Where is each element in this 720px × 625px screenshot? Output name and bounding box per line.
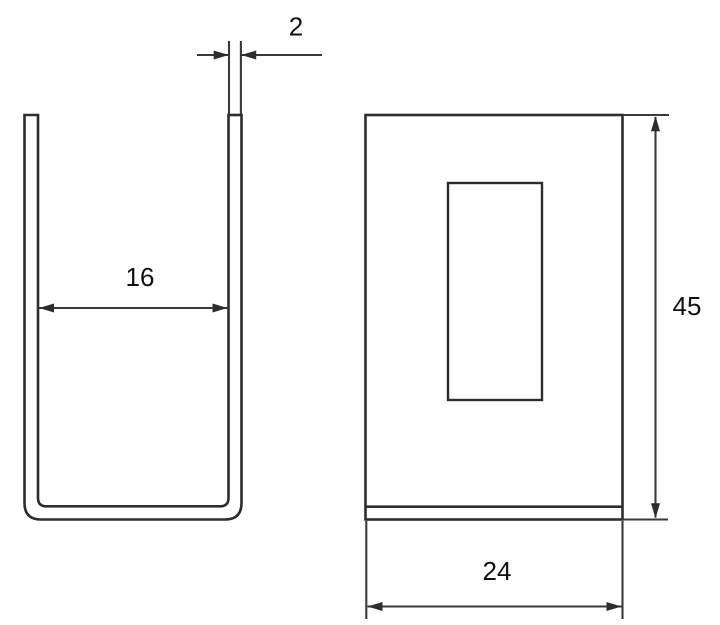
svg-text:16: 16 [126, 262, 155, 292]
svg-text:45: 45 [673, 291, 702, 321]
svg-text:2: 2 [289, 12, 303, 42]
svg-text:24: 24 [483, 556, 512, 586]
